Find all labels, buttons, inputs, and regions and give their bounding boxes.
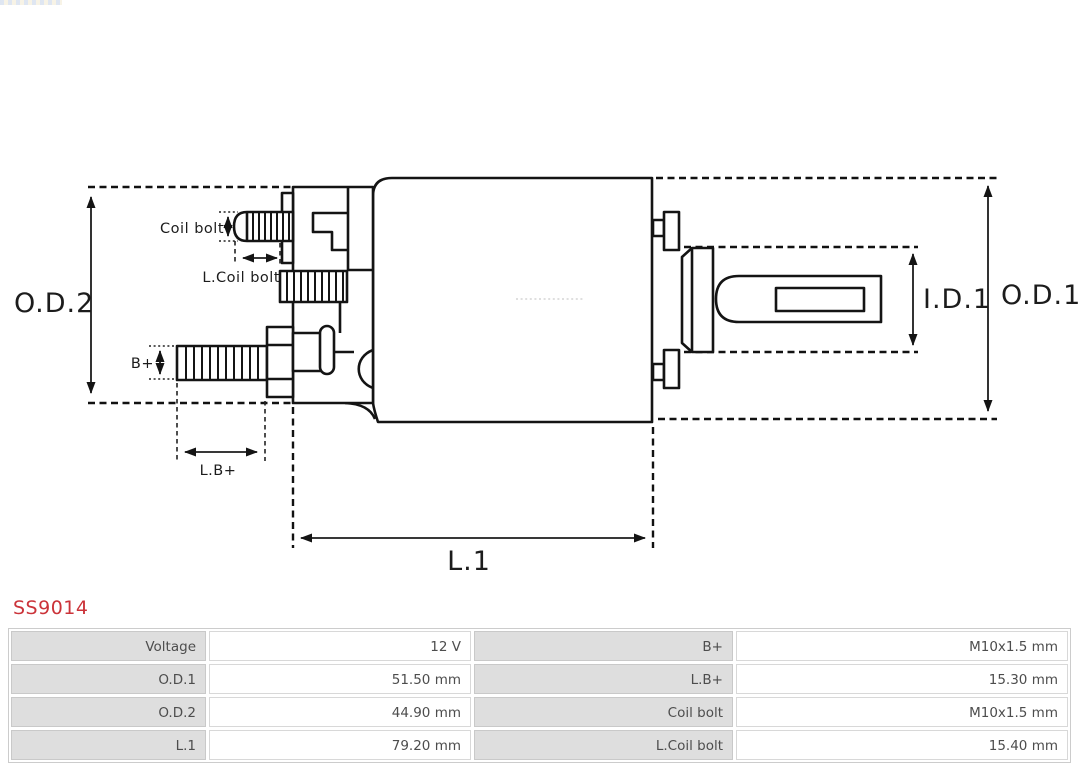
spec-value-lb-plus: 15.30 mm: [736, 664, 1068, 694]
spec-value-b-plus: M10x1.5 mm: [736, 631, 1068, 661]
label-od2: O.D.2: [14, 288, 94, 319]
solenoid-product-page: O.D.2 O.D.1 I.D.1 L.1 Coil bolt L.Coil b…: [0, 0, 1080, 767]
spec-value-voltage: 12 V: [209, 631, 471, 661]
label-l-coil-bolt: L.Coil bolt: [202, 270, 280, 286]
label-id1: I.D.1: [923, 284, 991, 315]
spec-value-l-coil-bolt: 15.40 mm: [736, 730, 1068, 760]
label-coil-bolt: Coil bolt: [160, 221, 224, 237]
spec-value-l1: 79.20 mm: [209, 730, 471, 760]
label-b-plus: B+: [131, 356, 154, 372]
plunger-assembly: [653, 212, 881, 388]
spec-label-coil-bolt: Coil bolt: [474, 697, 733, 727]
spec-label-l1: L.1: [11, 730, 206, 760]
spec-label-od1: O.D.1: [11, 664, 206, 694]
spec-table: Voltage 12 V B+ M10x1.5 mm O.D.1 51.50 m…: [8, 628, 1071, 763]
solenoid-technical-drawing: O.D.2 O.D.1 I.D.1 L.1 Coil bolt L.Coil b…: [0, 0, 1080, 595]
spec-value-od1: 51.50 mm: [209, 664, 471, 694]
spec-label-od2: O.D.2: [11, 697, 206, 727]
label-od1: O.D.1: [1001, 280, 1080, 311]
spec-label-b-plus: B+: [474, 631, 733, 661]
product-code-link[interactable]: SS9014: [13, 597, 88, 619]
spec-label-voltage: Voltage: [11, 631, 206, 661]
solenoid-body: [345, 178, 652, 422]
spec-value-coil-bolt: M10x1.5 mm: [736, 697, 1068, 727]
spec-label-lb-plus: L.B+: [474, 664, 733, 694]
label-l1: L.1: [447, 546, 491, 577]
spec-value-od2: 44.90 mm: [209, 697, 471, 727]
label-l-b-plus: L.B+: [200, 463, 237, 479]
spec-label-l-coil-bolt: L.Coil bolt: [474, 730, 733, 760]
